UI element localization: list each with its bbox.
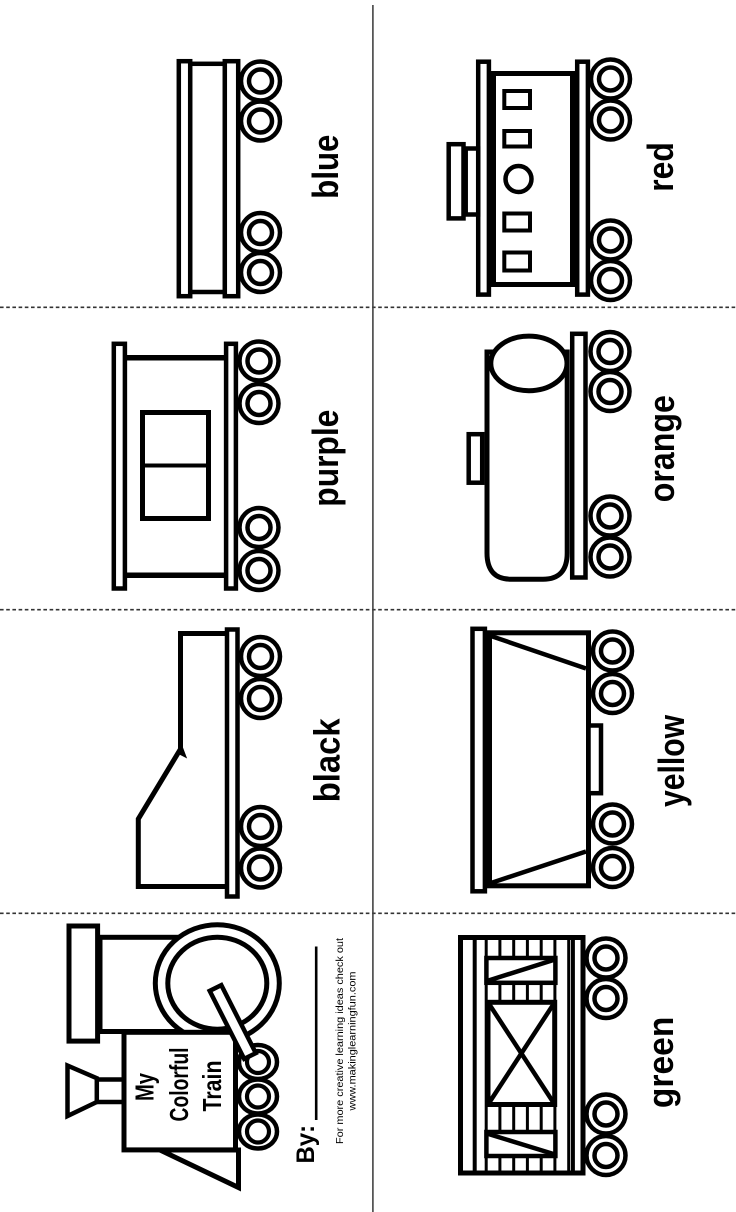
svg-text:Train: Train [197,1061,227,1112]
svg-text:yellow: yellow [651,714,692,807]
svg-text:orange: orange [641,395,682,502]
svg-text:For more creative learning ide: For more creative learning ideas check o… [335,938,346,1144]
svg-text:green: green [640,1017,681,1109]
svg-text:www.makinglearningfun.com: www.makinglearningfun.com [347,971,359,1111]
svg-text:Colorful: Colorful [164,1048,194,1122]
svg-text:My: My [130,1073,160,1101]
svg-text:purple: purple [305,410,346,507]
svg-text:By:: By: [292,1125,320,1164]
svg-text:black: black [307,717,348,802]
svg-text:red: red [640,142,681,192]
svg-text:blue: blue [305,135,346,199]
